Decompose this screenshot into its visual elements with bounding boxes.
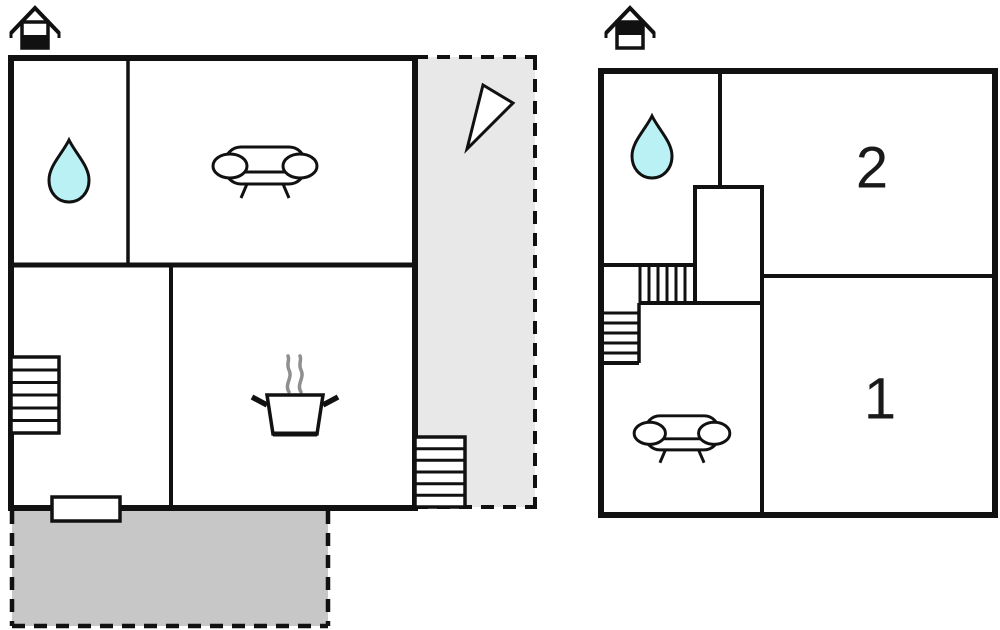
house-upper-floor-icon: [606, 8, 654, 48]
ground-floor-outer-walls: [11, 58, 415, 508]
pot-body: [267, 395, 323, 434]
sofa-armrest-right: [699, 422, 730, 444]
ground-floor-staircase: [11, 357, 59, 433]
house-upper-level-highlight: [619, 24, 642, 36]
covered-terrace-area: [12, 511, 328, 626]
room-1-label: 1: [864, 367, 896, 432]
entrance-step: [52, 497, 120, 521]
house-ground-level-highlight: [24, 35, 47, 47]
sofa-armrest-left: [634, 422, 665, 444]
covered-terrace: [12, 511, 328, 626]
sofa-armrest-right: [283, 154, 317, 178]
upper-floor-plan: 2 1: [601, 71, 995, 515]
house-ground-floor-icon: [11, 8, 59, 48]
room-2-label: 2: [856, 136, 888, 201]
floor-plan-canvas: 2 1: [0, 0, 1000, 630]
sofa-armrest-left: [213, 154, 247, 178]
exterior-steps: [415, 437, 465, 507]
ground-floor-plan: [8, 58, 465, 521]
